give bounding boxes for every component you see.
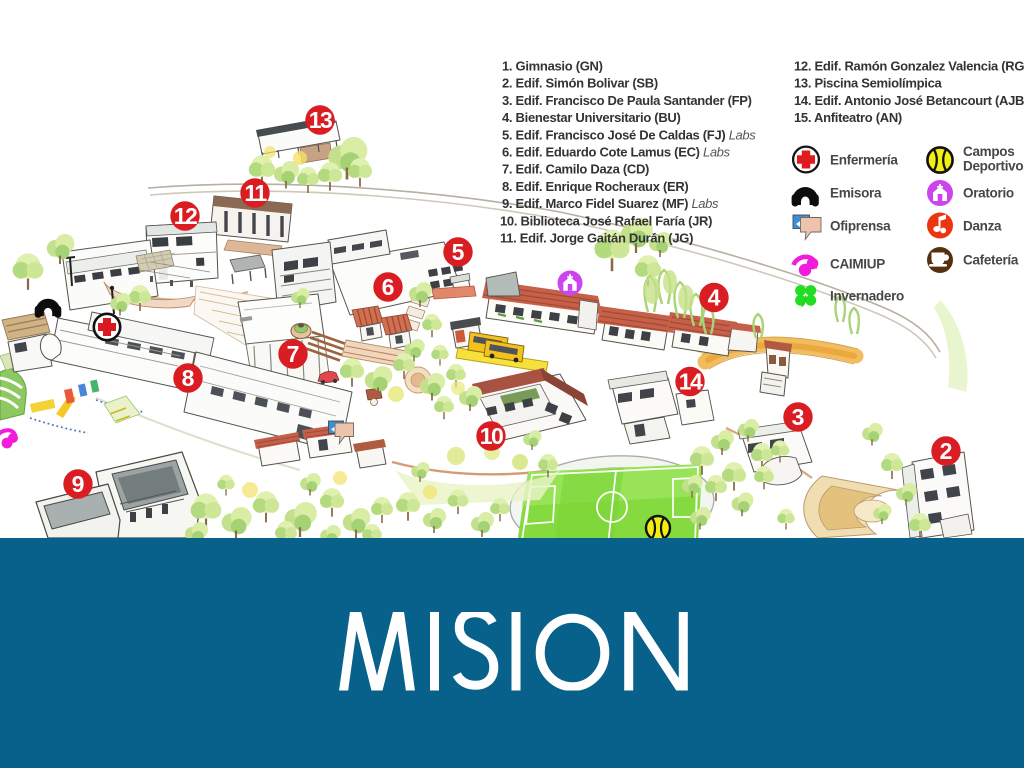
svg-text:13: 13 (309, 107, 332, 133)
svg-text:11: 11 (244, 180, 267, 206)
svg-text:4. Bienestar Universitario (BU: 4. Bienestar Universitario (BU) (502, 110, 681, 125)
svg-text:CAIMIUP: CAIMIUP (830, 257, 885, 272)
svg-text:9. Edif. Marco Fidel Suarez (M: 9. Edif. Marco Fidel Suarez (MF) Labs (502, 196, 719, 211)
svg-text:Oratorio: Oratorio (963, 186, 1014, 201)
svg-text:Ofiprensa: Ofiprensa (830, 219, 891, 234)
svg-text:5. Edif. Francisco José De Cal: 5. Edif. Francisco José De Caldas (FJ) L… (502, 127, 756, 142)
svg-text:10: 10 (480, 423, 503, 449)
svg-text:5: 5 (452, 239, 465, 265)
svg-text:Danza: Danza (963, 219, 1002, 234)
svg-text:6. Edif. Eduardo Cote Lamus (E: 6. Edif. Eduardo Cote Lamus (EC) Labs (502, 145, 731, 160)
svg-text:7: 7 (287, 341, 300, 367)
svg-text:7. Edif. Camilo Daza (CD): 7. Edif. Camilo Daza (CD) (502, 162, 649, 177)
svg-text:Enfermería: Enfermería (830, 153, 898, 168)
svg-text:Campos: Campos (963, 144, 1014, 159)
svg-text:3: 3 (792, 404, 805, 430)
svg-text:Cafetería: Cafetería (963, 253, 1019, 268)
svg-text:6: 6 (382, 274, 395, 300)
svg-text:10. Biblioteca José Rafael Far: 10. Biblioteca José Rafael Faría (JR) (500, 213, 712, 228)
svg-text:12: 12 (174, 203, 197, 229)
svg-text:Invernadero: Invernadero (830, 289, 904, 304)
svg-text:Deportivos: Deportivos (963, 159, 1024, 174)
svg-text:1. Gimnasio (GN): 1. Gimnasio (GN) (502, 59, 603, 74)
svg-text:8: 8 (182, 365, 195, 391)
svg-text:4: 4 (708, 285, 721, 311)
svg-text:2. Edif. Simón Bolivar (SB): 2. Edif. Simón Bolivar (SB) (502, 76, 658, 91)
svg-text:14: 14 (679, 369, 703, 395)
svg-text:12. Edif. Ramón Gonzalez Valen: 12. Edif. Ramón Gonzalez Valencia (RG) (794, 59, 1024, 74)
svg-text:11. Edif. Jorge Gaitán Durán (: 11. Edif. Jorge Gaitán Durán (JG) (500, 231, 693, 246)
svg-text:3. Edif. Francisco De Paula Sa: 3. Edif. Francisco De Paula Santander (F… (502, 93, 752, 108)
svg-text:15. Anfiteatro (AN): 15. Anfiteatro (AN) (794, 110, 902, 125)
svg-text:9: 9 (72, 471, 85, 497)
svg-text:2: 2 (940, 438, 953, 464)
svg-text:14. Edif. Antonio José Betanco: 14. Edif. Antonio José Betancourt (AJB) (794, 93, 1024, 108)
svg-text:8. Edif. Enrique Rocheraux (ER: 8. Edif. Enrique Rocheraux (ER) (502, 179, 688, 194)
svg-text:13. Piscina Semiolímpica: 13. Piscina Semiolímpica (794, 76, 942, 91)
svg-text:Emisora: Emisora (830, 186, 882, 201)
